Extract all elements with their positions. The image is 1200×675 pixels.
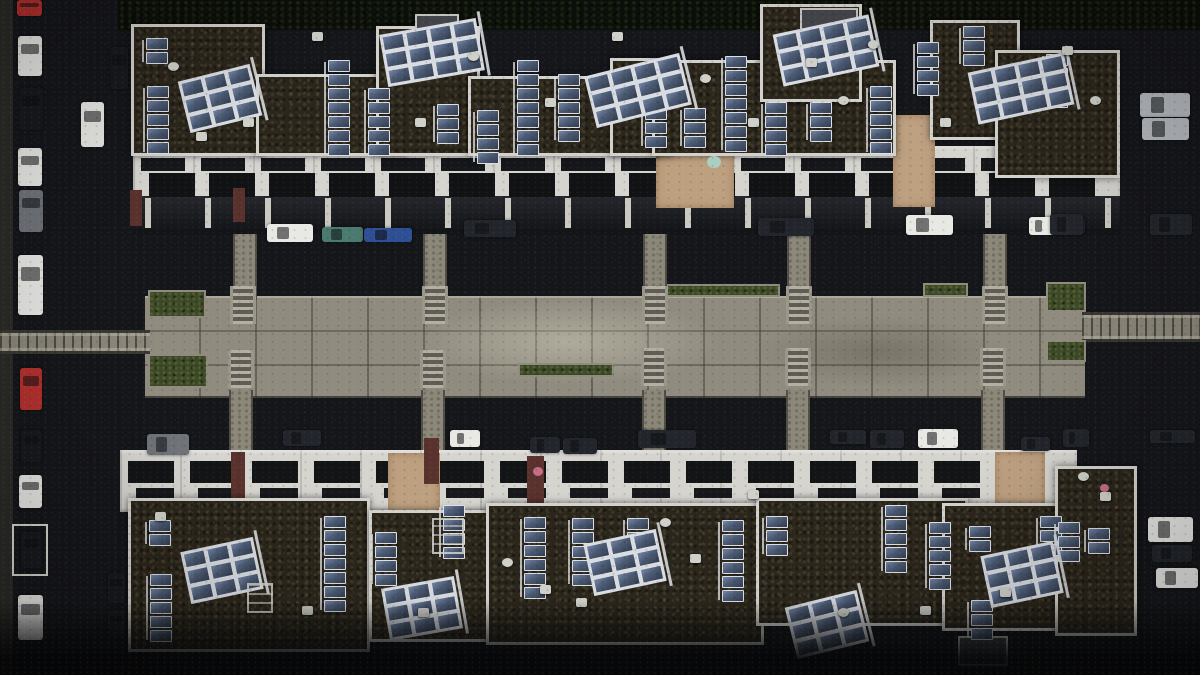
aerial-photo	[0, 0, 1200, 675]
film-grain	[0, 0, 1200, 675]
